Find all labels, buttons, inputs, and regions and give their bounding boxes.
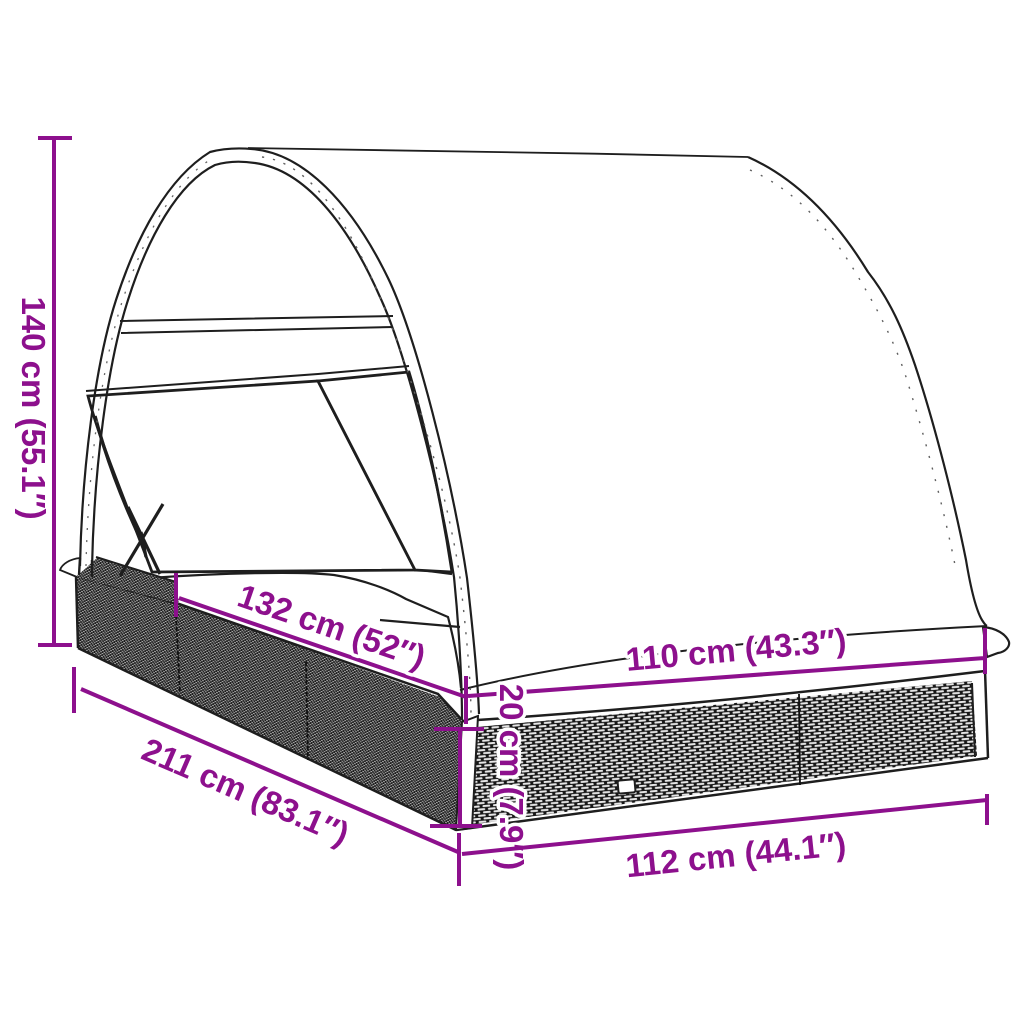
svg-text:140 cm (55.1″): 140 cm (55.1″): [15, 296, 52, 519]
svg-text:20 cm (7.9″): 20 cm (7.9″): [493, 684, 530, 870]
